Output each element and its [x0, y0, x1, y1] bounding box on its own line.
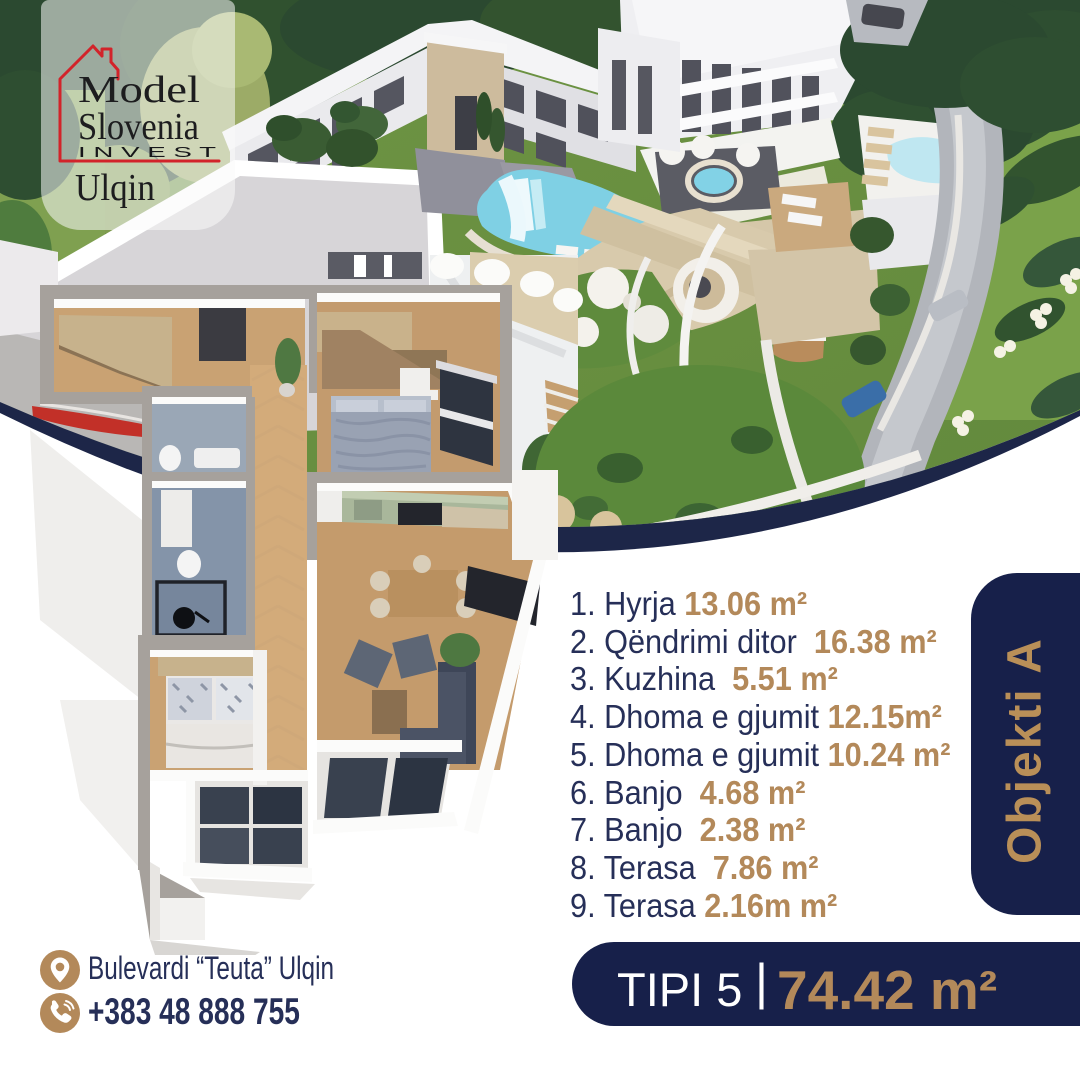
svg-text:Slovenia: Slovenia: [78, 106, 199, 148]
svg-text:Ulqin: Ulqin: [75, 167, 155, 209]
svg-text:Model: Model: [78, 69, 200, 111]
svg-text:I N V E S T: I N V E S T: [78, 144, 216, 161]
